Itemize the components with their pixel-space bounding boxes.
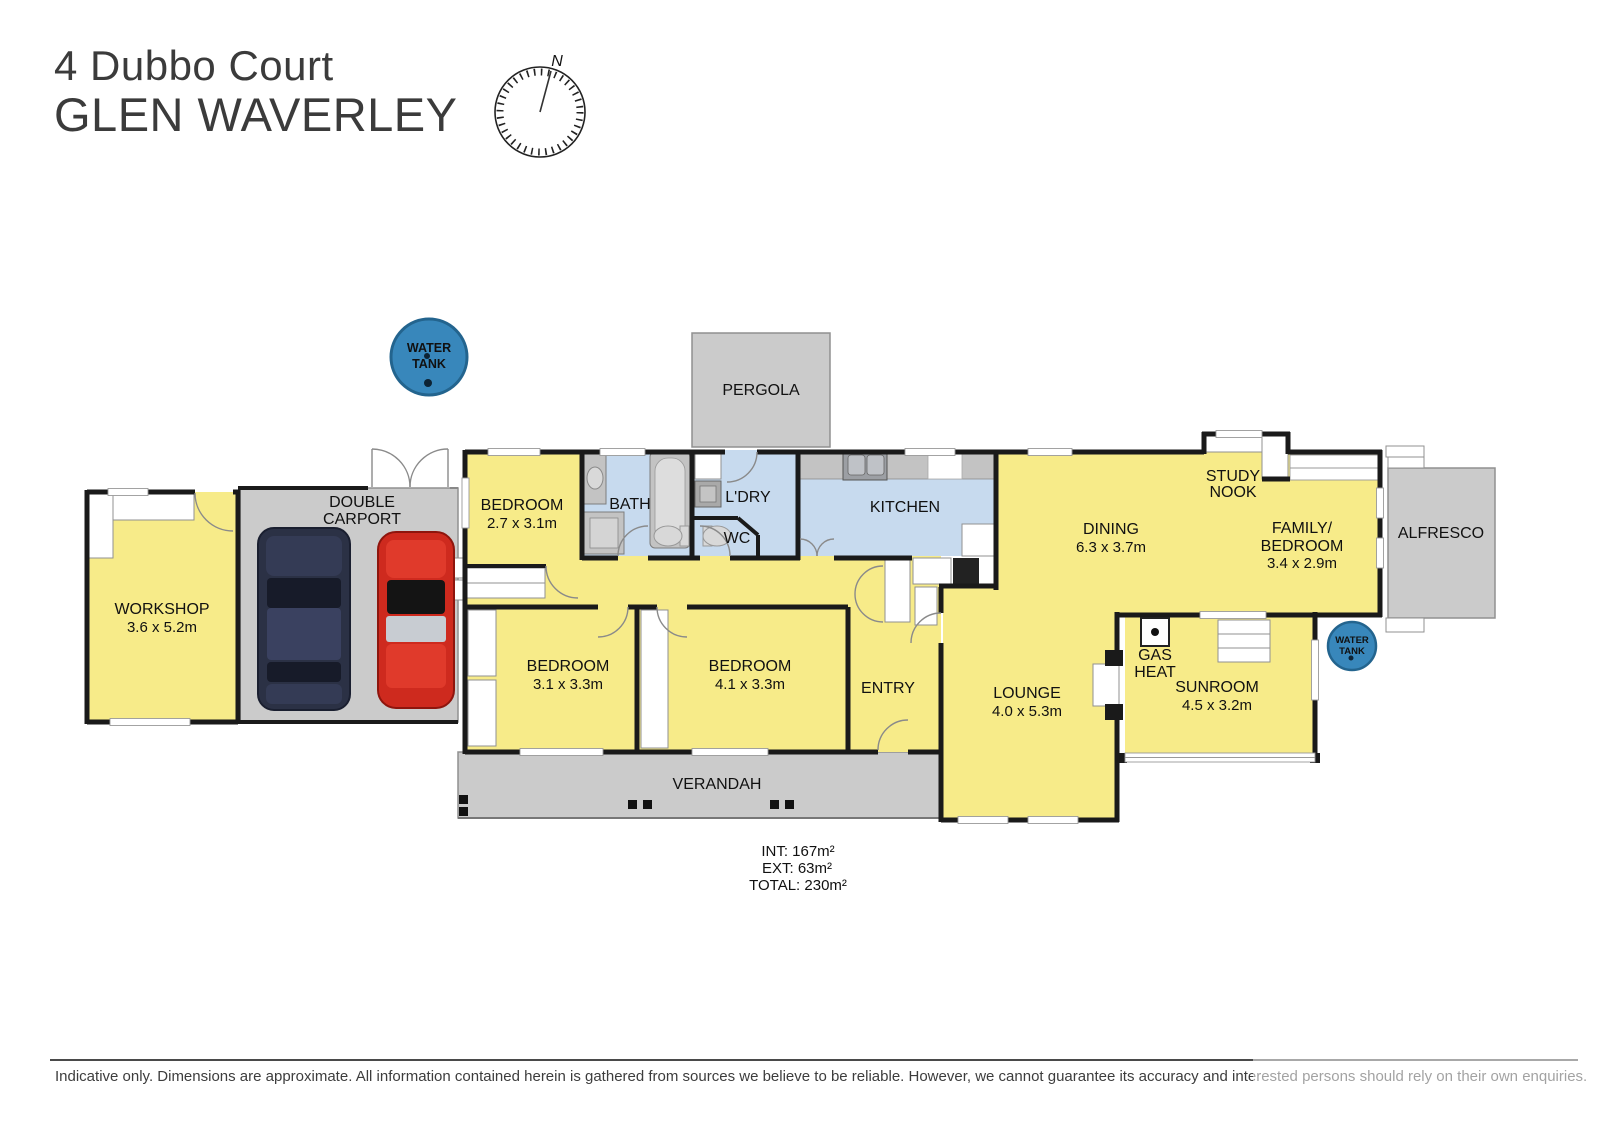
label-dining-dims: 6.3 x 3.7m — [1076, 539, 1146, 556]
car-dark — [258, 528, 350, 710]
water-tank-label-2: TANK — [412, 357, 446, 371]
water-tank2-label-2: TANK — [1339, 646, 1365, 657]
label-study-1: STUDY — [1206, 468, 1261, 485]
car-red — [378, 532, 454, 708]
label-carport-1: DOUBLE — [329, 494, 395, 511]
label-lounge: LOUNGE — [993, 685, 1061, 702]
label-bedroom-c: BEDROOM — [709, 658, 792, 675]
area-ext: EXT: 63m² — [762, 860, 832, 877]
area-total: TOTAL: 230m² — [749, 877, 847, 894]
label-bath: BATH — [609, 496, 650, 513]
label-carport-2: CARPORT — [323, 511, 401, 528]
label-entry: ENTRY — [861, 680, 915, 697]
label-workshop: WORKSHOP — [114, 601, 209, 618]
label-bedroom-c-dims: 4.1 x 3.3m — [715, 676, 785, 693]
label-wc: WC — [724, 530, 751, 547]
label-gas: GAS — [1138, 647, 1172, 664]
label-bedroom-b-dims: 3.1 x 3.3m — [533, 676, 603, 693]
label-bedroom-b: BEDROOM — [527, 658, 610, 675]
label-family-dims: 3.4 x 2.9m — [1267, 555, 1337, 572]
label-sunroom-dims: 4.5 x 3.2m — [1182, 697, 1252, 714]
compass-north-label: N — [551, 53, 563, 70]
label-bedroom-a: BEDROOM — [481, 497, 564, 514]
label-bedroom-a-dims: 2.7 x 3.1m — [487, 515, 557, 532]
label-pergola: PERGOLA — [722, 382, 800, 399]
label-family-2: BEDROOM — [1261, 538, 1344, 555]
water-tank-icon: WATER TANK — [391, 319, 467, 395]
label-verandah: VERANDAH — [673, 776, 762, 793]
floorplan-page: WATER TANK WATER TANK N WORKSHOP 3.6 x 5… — [0, 0, 1600, 1131]
water-tank-2-icon: WATER TANK — [1328, 622, 1376, 670]
water-tank-label-1: WATER — [407, 341, 451, 355]
area-int: INT: 167m² — [761, 843, 834, 860]
water-tank2-label-1: WATER — [1335, 635, 1369, 646]
area-summary: INT: 167m² EXT: 63m² TOTAL: 230m² — [749, 843, 847, 894]
label-alfresco: ALFRESCO — [1398, 525, 1484, 542]
label-study-2: NOOK — [1209, 484, 1256, 501]
label-laundry: L'DRY — [725, 489, 771, 506]
title-block: 4 Dubbo Court GLEN WAVERLEY — [54, 42, 458, 142]
compass-icon: N — [495, 53, 585, 157]
gas-heater — [1141, 618, 1169, 646]
watermark-overlay — [1253, 1044, 1600, 1096]
label-kitchen: KITCHEN — [870, 499, 940, 516]
address-suburb: GLEN WAVERLEY — [54, 89, 458, 142]
label-lounge-dims: 4.0 x 5.3m — [992, 703, 1062, 720]
label-family-1: FAMILY/ — [1272, 520, 1333, 537]
label-workshop-dims: 3.6 x 5.2m — [127, 619, 197, 636]
label-dining: DINING — [1083, 521, 1139, 538]
label-sunroom: SUNROOM — [1175, 679, 1259, 696]
floorplan-drawing: WATER TANK WATER TANK N WORKSHOP 3.6 x 5… — [0, 0, 1600, 1131]
address-street: 4 Dubbo Court — [54, 42, 458, 89]
label-heat: HEAT — [1134, 664, 1176, 681]
